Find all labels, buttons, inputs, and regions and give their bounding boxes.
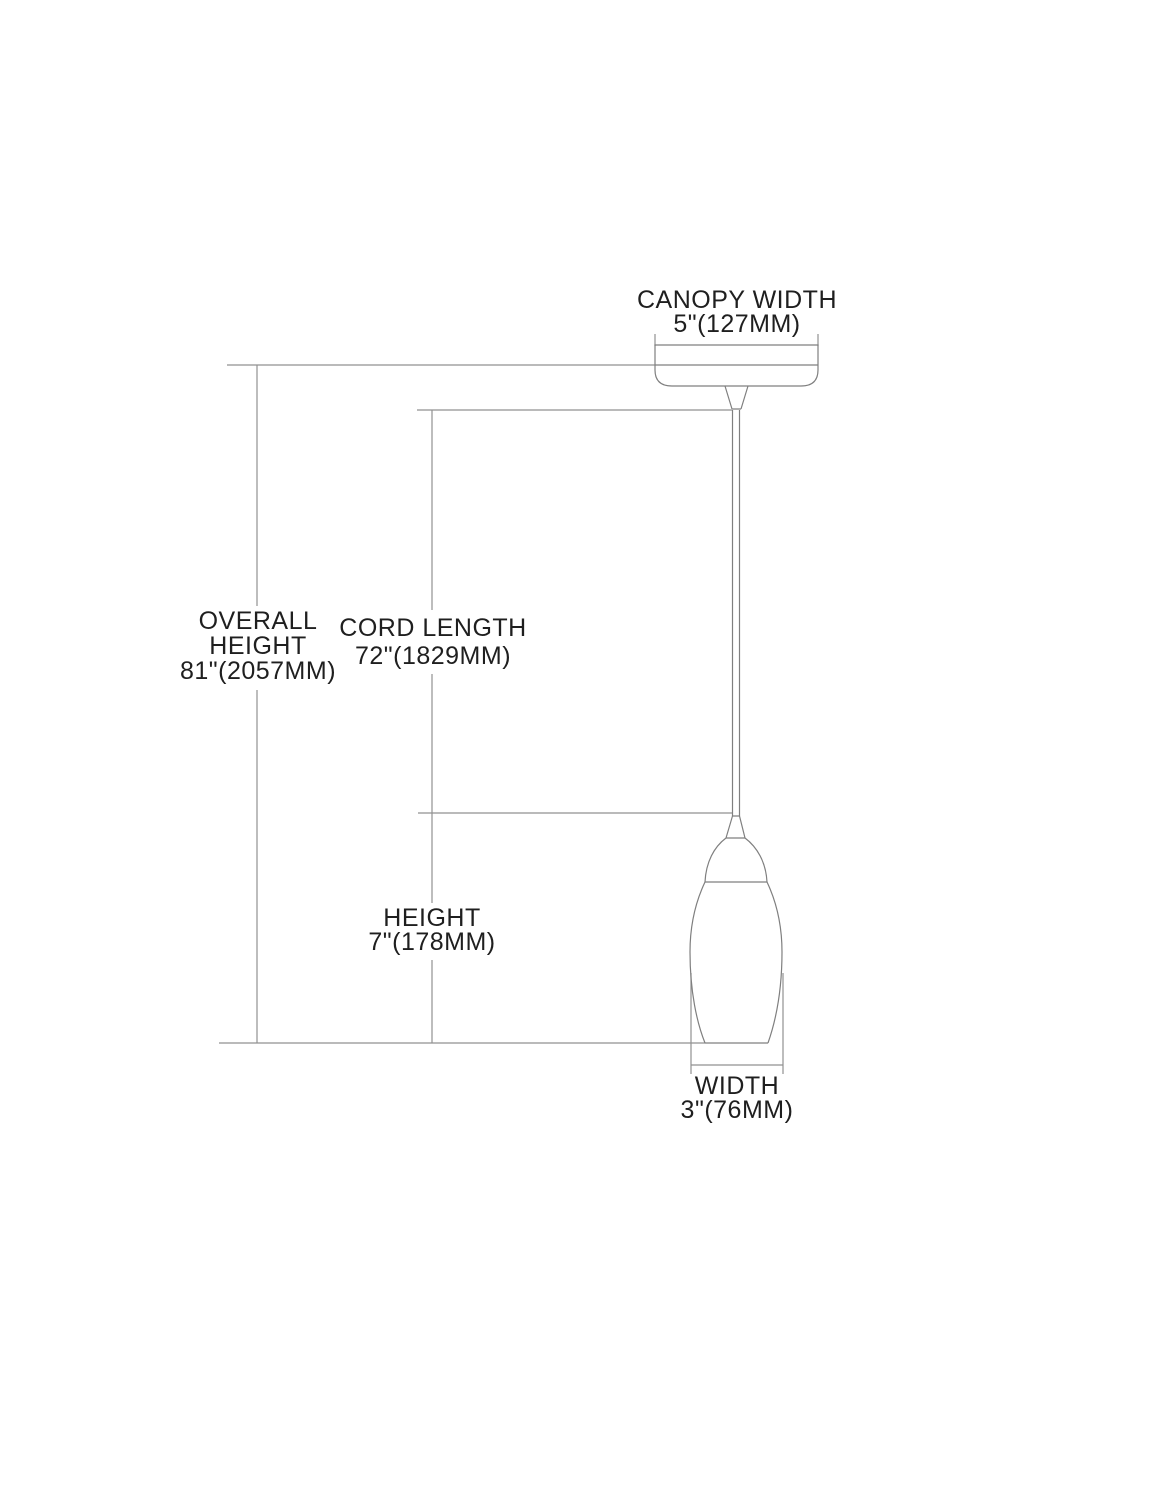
shade-dome-outline (705, 838, 767, 882)
shade-body-outline (690, 882, 782, 1043)
cord-length-label: CORD LENGTH (339, 614, 526, 642)
overall-height-value: 81"(2057MM) (180, 657, 336, 685)
height-value: 7"(178MM) (368, 928, 495, 956)
dimension-diagram: CANOPY WIDTH 5"(127MM) OVERALL HEIGHT 81… (0, 0, 1159, 1500)
width-value: 3"(76MM) (681, 1096, 794, 1124)
overall-height-label-line1: OVERALL (199, 607, 318, 635)
cord-length-value: 72"(1829MM) (355, 642, 511, 670)
canopy-width-value: 5"(127MM) (673, 310, 800, 338)
socket-cone-outline (726, 816, 745, 838)
dimension-lines-group (219, 334, 818, 1074)
cord-lines (733, 410, 740, 816)
fixture-outline-group (655, 345, 818, 1043)
stem-funnel-outline (725, 386, 748, 409)
measurement-labels-group: CANOPY WIDTH 5"(127MM) OVERALL HEIGHT 81… (180, 286, 837, 1124)
overall-height-label-line2: HEIGHT (209, 632, 306, 660)
